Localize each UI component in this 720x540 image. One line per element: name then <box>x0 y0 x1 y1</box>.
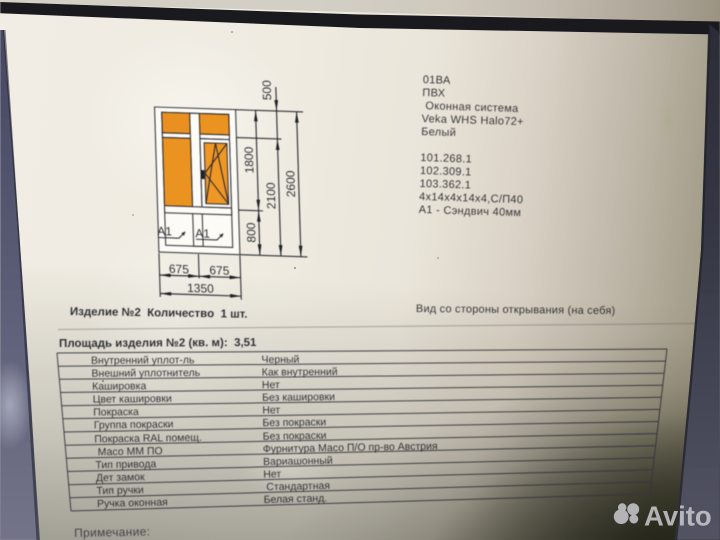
svg-text:Avito: Avito <box>644 501 712 532</box>
